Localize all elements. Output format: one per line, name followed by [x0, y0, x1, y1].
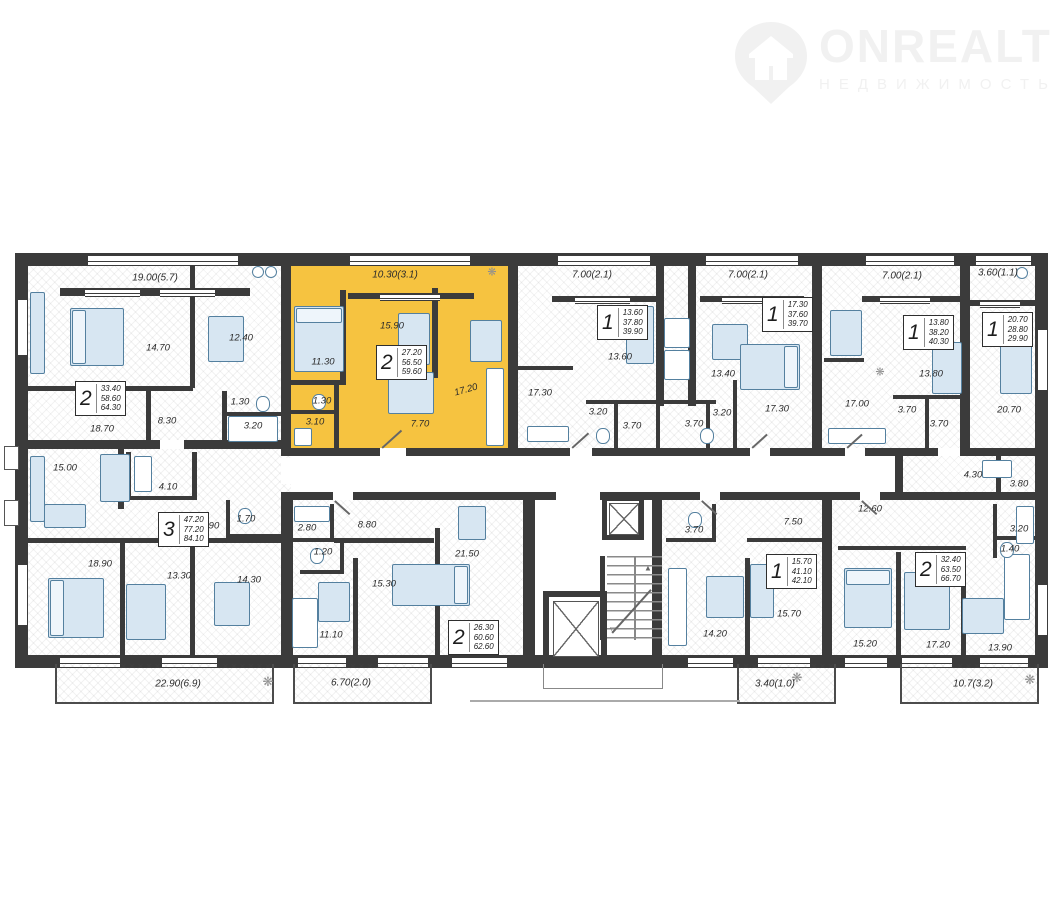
entrance-porch	[543, 664, 663, 689]
wall	[993, 504, 997, 558]
door-opening	[860, 492, 880, 500]
living-area: 20.70	[1008, 315, 1028, 325]
wall	[838, 546, 966, 550]
elevator-wall	[543, 591, 549, 661]
living-area: 15.70	[792, 557, 812, 567]
wall	[281, 492, 1035, 500]
room-area-label: 15.90	[380, 321, 404, 332]
full-area: 66.70	[941, 574, 961, 584]
living-area: 13.80	[929, 318, 949, 328]
dining-table	[706, 576, 744, 618]
apartment-rooms-count: 3	[163, 519, 175, 540]
utility-box	[4, 500, 19, 526]
room-area-label: 3.70	[623, 421, 642, 432]
room-area-label: 8.30	[158, 416, 177, 427]
room-area-label: 3.20	[1010, 524, 1029, 535]
apartment-info-i: 1 15.70 41.10 42.10	[766, 554, 817, 589]
wall	[293, 538, 334, 542]
kitchen-counter	[486, 368, 504, 446]
balcony-railing	[558, 255, 650, 266]
corridor	[291, 456, 895, 492]
wall	[656, 404, 660, 452]
apartment-info-g: 3 47.20 77.20 84.10	[158, 512, 209, 547]
apartment-info-d: 1 17.30 37.60 39.70	[762, 297, 813, 332]
wardrobe	[30, 292, 45, 374]
wall	[300, 570, 344, 574]
balcony-area-label: 7.00(2.1)	[572, 270, 612, 281]
wall	[190, 266, 195, 388]
door-opening	[938, 448, 960, 456]
window	[380, 294, 440, 301]
plant-icon: ❋	[875, 366, 884, 379]
room-area-label: 7.70	[411, 419, 430, 430]
balcony-area-label: 6.70(2.0)	[331, 678, 371, 689]
dining-table	[830, 310, 862, 356]
room-area-label: 3.20	[244, 421, 263, 432]
room-area-label: 13.80	[919, 369, 943, 380]
bathtub	[982, 460, 1012, 478]
room-area-label: 3.70	[898, 405, 917, 416]
balcony-railing	[88, 255, 238, 266]
room-area-label: 17.30	[528, 388, 552, 399]
window	[452, 657, 507, 668]
onrealt-pin-house-icon	[735, 22, 807, 104]
room-area-label: 4.30	[964, 470, 983, 481]
desk	[44, 504, 86, 528]
room-area-label: 4.10	[159, 482, 178, 493]
balcony-railing	[866, 255, 954, 266]
door-opening	[160, 440, 184, 449]
total-area: 37.80	[623, 318, 643, 328]
balcony-area-label: 7.00(2.1)	[882, 271, 922, 282]
room-area-label: 13.90	[988, 643, 1012, 654]
apartment-rooms-count: 1	[987, 319, 999, 340]
apartment-rooms-count: 2	[381, 352, 393, 373]
wall	[666, 538, 716, 542]
room-area-label: 15.00	[53, 463, 77, 474]
wall	[330, 504, 334, 542]
stair-up-arrow: ▲	[644, 564, 652, 573]
total-area: 28.80	[1008, 325, 1028, 335]
door-opening	[556, 492, 600, 500]
total-area: 58.60	[101, 394, 121, 404]
balcony-railing	[706, 255, 798, 266]
wall	[614, 404, 618, 452]
door-opening	[845, 448, 865, 456]
kitchen-appliance	[664, 318, 690, 348]
room-area-label: 11.10	[319, 630, 342, 641]
apartment-info-a: 2 33.40 58.60 64.30	[75, 381, 126, 416]
apartment-rooms-count: 1	[767, 304, 779, 325]
dining-table	[962, 598, 1004, 634]
full-area: 84.10	[184, 534, 204, 544]
window	[1037, 330, 1048, 390]
balcony-area-label: 22.90(6.9)	[155, 679, 201, 690]
kitchen-appliance	[664, 350, 690, 380]
wall	[822, 500, 832, 655]
full-area: 59.60	[402, 367, 422, 377]
bed-pillow	[784, 346, 798, 388]
toilet	[596, 428, 610, 444]
wall	[146, 391, 151, 443]
room-area-label: 15.30	[372, 579, 396, 590]
apartment-info-f: 1 20.70 28.80 29.90	[982, 312, 1033, 347]
bed-pillow	[846, 570, 890, 585]
room-area-label: 14.70	[146, 343, 170, 354]
door-opening	[570, 448, 592, 456]
window	[160, 289, 215, 297]
full-area: 64.30	[101, 403, 121, 413]
wall	[126, 496, 196, 500]
balcony-area-label: 10.30(3.1)	[372, 270, 418, 281]
room-area-label: 7.50	[784, 517, 803, 528]
bathtub	[294, 506, 330, 522]
room-area-label: 13.60	[608, 352, 632, 363]
wall	[281, 266, 291, 456]
living-area: 47.20	[184, 515, 204, 525]
kitchen-counter	[292, 598, 318, 648]
apartment-info-j: 2 32.40 63.50 66.70	[915, 552, 966, 587]
stair-wall	[600, 556, 605, 640]
kitchen-counter	[668, 568, 687, 646]
dining-table	[214, 582, 250, 626]
flower-pot	[252, 266, 264, 278]
washing-machine	[294, 428, 312, 446]
balcony-railing	[350, 255, 470, 266]
total-area: 63.50	[941, 565, 961, 575]
full-area: 42.10	[792, 576, 812, 586]
living-area: 27.20	[402, 348, 422, 358]
wall	[747, 538, 822, 542]
apartment-info-h: 2 26.30 60.60 62.60	[448, 620, 499, 655]
room-area-label: 18.90	[88, 559, 112, 570]
room-area-label: 3.80	[1010, 479, 1029, 490]
wall	[353, 558, 358, 655]
full-area: 29.90	[1008, 334, 1028, 344]
room-area-label: 14.30	[237, 575, 261, 586]
full-area: 39.70	[788, 319, 808, 329]
total-area: 38.20	[929, 328, 949, 338]
total-area: 56.50	[402, 358, 422, 368]
window	[845, 657, 887, 668]
kitchen-counter	[1004, 554, 1030, 620]
wardrobe	[30, 456, 45, 522]
shaft-wall	[602, 496, 607, 540]
room-area-label: 3.70	[685, 525, 704, 536]
floor-plan-page: ONREALT НЕДВИЖИМОСТЬ	[0, 0, 1061, 910]
room-area-label: 21.50	[455, 549, 479, 560]
plant-icon: ❋	[1025, 672, 1036, 688]
wall	[432, 288, 438, 378]
living-area: 13.60	[623, 308, 643, 318]
wall	[190, 543, 195, 655]
dining-table	[470, 320, 502, 362]
room-area-label: 11.30	[311, 357, 334, 368]
apartment-rooms-count: 2	[453, 627, 465, 648]
apartment-info-c: 1 13.60 37.80 39.90	[597, 305, 648, 340]
room-area-label: 17.00	[845, 399, 869, 410]
balcony-area-label: 3.40(1.0)	[755, 679, 795, 690]
room-area-label: 12.40	[229, 333, 253, 344]
apartment-rooms-count: 2	[920, 559, 932, 580]
window	[980, 301, 1020, 308]
elevator	[553, 601, 599, 657]
onrealt-logo: ONREALT НЕДВИЖИМОСТЬ	[735, 22, 1057, 104]
full-area: 62.60	[474, 642, 494, 652]
plant-icon: ❋	[487, 266, 496, 279]
room-area-label: 2.80	[298, 523, 317, 534]
door-opening	[700, 492, 720, 500]
shaft-wall	[602, 496, 644, 501]
room-area-label: 20.70	[997, 405, 1021, 416]
balcony-area-label: 3.60(1.1)	[978, 268, 1018, 279]
room-area-label: 17.30	[765, 404, 789, 415]
room-area-label: 1.40	[1001, 544, 1020, 555]
room-area-label: 1.30	[231, 397, 250, 408]
room-area-label: 18.70	[90, 424, 114, 435]
window	[17, 565, 28, 625]
elevator-wall	[543, 591, 607, 597]
bed	[100, 454, 130, 502]
wall	[192, 452, 197, 500]
door-opening	[380, 448, 406, 456]
full-area: 39.90	[623, 327, 643, 337]
wall	[896, 552, 901, 655]
room-area-label: 15.70	[777, 609, 801, 620]
room-area-label: 3.70	[685, 419, 704, 430]
total-area: 37.60	[788, 310, 808, 320]
desk	[458, 506, 486, 540]
room-area-label: 8.80	[358, 520, 377, 531]
window	[575, 297, 630, 304]
wall	[334, 538, 434, 543]
bed-pillow	[50, 580, 64, 636]
window	[85, 289, 140, 297]
stair-divider	[634, 556, 636, 640]
brand-name: ONREALT	[819, 22, 1057, 70]
apartment-rooms-count: 1	[908, 322, 920, 343]
brand-subtitle: НЕДВИЖИМОСТЬ	[819, 76, 1057, 93]
wall	[656, 266, 664, 406]
wall	[340, 543, 344, 573]
apartment-rooms-count: 1	[602, 312, 614, 333]
living-area: 32.40	[941, 555, 961, 565]
wall	[925, 399, 929, 448]
bed-pillow	[296, 308, 342, 323]
bathtub	[134, 456, 152, 492]
shaft-wall	[602, 535, 644, 540]
window	[688, 657, 733, 668]
dining-table	[318, 582, 350, 622]
room-area-label: 1.20	[314, 547, 333, 558]
window	[1037, 585, 1048, 635]
elevator-shaft	[609, 503, 639, 535]
bed-pillow	[454, 566, 468, 604]
room-area-label: 15.20	[853, 639, 877, 650]
door-opening	[333, 492, 353, 500]
wall	[518, 366, 573, 370]
room-area-label: 3.70	[930, 419, 949, 430]
door-opening	[281, 458, 291, 484]
room-area-label: 1.70	[237, 514, 256, 525]
room-area-label: 13.30	[167, 571, 191, 582]
total-area: 41.10	[792, 567, 812, 577]
bed	[126, 584, 166, 640]
bed-pillow	[72, 310, 86, 364]
wall	[120, 543, 125, 655]
balcony-railing	[976, 255, 1031, 266]
room-area-label: 14.20	[703, 629, 727, 640]
balcony-area-label: 19.00(5.7)	[132, 273, 178, 284]
door-opening	[750, 448, 770, 456]
plant-icon: ❋	[263, 674, 274, 690]
toilet	[256, 396, 270, 412]
flower-pot	[265, 266, 277, 278]
room-area-label: 17.20	[926, 640, 950, 651]
wall	[824, 358, 864, 362]
full-area: 40.30	[929, 337, 949, 347]
utility-box	[4, 446, 19, 470]
living-area: 17.30	[788, 300, 808, 310]
room-area-label: 3.10	[306, 417, 325, 428]
balcony-area-label: 10.7(3.2)	[953, 679, 993, 690]
wall	[28, 538, 281, 543]
wall	[291, 410, 336, 414]
living-area: 26.30	[474, 623, 494, 633]
wall	[226, 500, 230, 538]
room-area-label: 1.30	[313, 396, 332, 407]
window	[880, 297, 930, 304]
room-area-label: 3.20	[589, 407, 608, 418]
kitchen-counter	[527, 426, 569, 442]
total-area: 77.20	[184, 525, 204, 535]
wall	[586, 400, 716, 404]
wall	[523, 500, 535, 655]
room-area-label: 3.20	[713, 408, 732, 419]
apartment-info-b-highlighted[interactable]: 2 27.20 56.50 59.60	[376, 345, 427, 380]
room-area-label: 13.40	[711, 369, 735, 380]
wall	[812, 266, 822, 448]
wall	[334, 385, 339, 456]
wall	[895, 448, 903, 500]
entrance-canopy-line	[470, 700, 740, 702]
toilet	[700, 428, 714, 444]
apartment-rooms-count: 2	[80, 388, 92, 409]
apartment-rooms-count: 1	[771, 561, 783, 582]
living-area: 33.40	[101, 384, 121, 394]
balcony-area-label: 7.00(2.1)	[728, 270, 768, 281]
total-area: 60.60	[474, 633, 494, 643]
window	[17, 300, 28, 355]
wall	[222, 391, 227, 448]
wall	[733, 380, 737, 448]
wall	[508, 266, 518, 456]
shaft-wall	[639, 496, 644, 540]
apartment-info-e: 1 13.80 38.20 40.30	[903, 315, 954, 350]
